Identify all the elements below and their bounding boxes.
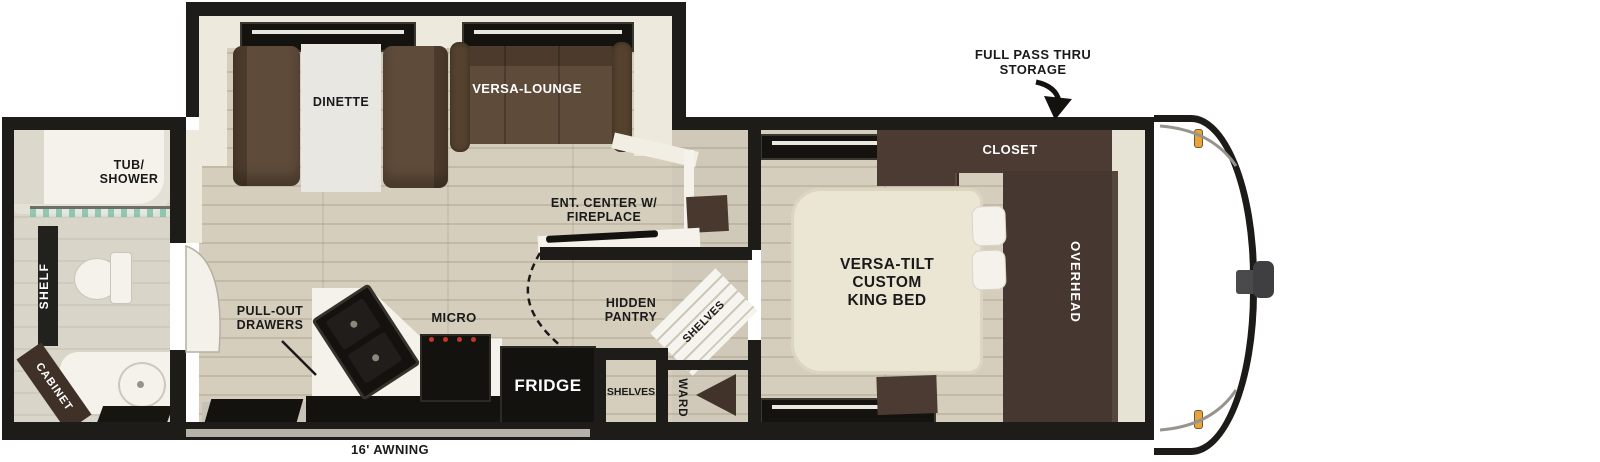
king-bed-label-line3: KING BED	[792, 292, 982, 310]
wall-bedroom-divider-lower	[748, 340, 761, 422]
shelves-room-label: SHELVES	[604, 386, 658, 398]
bathroom-mat	[97, 406, 173, 423]
overhead-label: OVERHEAD	[1062, 222, 1082, 342]
wall-shelvesroom-top	[594, 348, 668, 360]
hidden-pantry-label-line2: PANTRY	[595, 310, 667, 324]
awning-label: 16' AWNING	[320, 443, 460, 458]
entry-step	[205, 399, 304, 422]
wall-main-left-upper	[186, 2, 199, 117]
wall-main-right	[672, 2, 686, 130]
closet-label: CLOSET	[960, 143, 1060, 158]
toilet-tank	[110, 252, 132, 304]
hidden-pantry-label-line1: HIDDEN	[595, 296, 667, 310]
awning-bar	[186, 429, 590, 437]
sink-drain	[137, 381, 144, 388]
bed-foot-cabinet	[876, 375, 937, 415]
wall-bath-left	[2, 117, 14, 422]
ent-center-label: ENT. CENTER W/ FIREPLACE	[545, 196, 663, 225]
king-bed-label: VERSA-TILT CUSTOM KING BED	[792, 256, 982, 310]
burner-knob	[457, 337, 462, 342]
stove	[420, 334, 491, 402]
overhead-cabinet	[1003, 171, 1118, 422]
burner-knob	[443, 337, 448, 342]
king-bed-label-line1: VERSA-TILT	[792, 256, 982, 274]
fridge: FRIDGE	[500, 346, 596, 426]
ent-center-label-line2: FIREPLACE	[545, 210, 663, 224]
marker-light-top	[1194, 129, 1203, 148]
hidden-pantry-label: HIDDEN PANTRY	[595, 296, 667, 325]
burner-knob	[471, 337, 476, 342]
main-right-wall-face	[634, 14, 672, 156]
corner-shelves-label: SHELVES	[680, 298, 727, 345]
tub-shower-label: TUB/ SHOWER	[84, 158, 174, 187]
ent-center-label-line1: ENT. CENTER W/	[545, 196, 663, 210]
dinette-table	[301, 44, 381, 192]
fridge-label: FRIDGE	[514, 376, 581, 396]
dinette-bench-right	[383, 46, 448, 188]
shower-glass-sparkle	[30, 209, 172, 217]
ward-label: WARD	[668, 348, 688, 448]
wall-bedroom-top	[672, 117, 1150, 130]
pull-out-label-line2: DRAWERS	[228, 318, 312, 332]
storage-arrow-shaft	[1036, 82, 1059, 101]
king-bed-label-line2: CUSTOM	[792, 274, 982, 292]
hitch-coupler	[1253, 261, 1274, 298]
pull-out-drawers-label: PULL-OUT DRAWERS	[228, 304, 312, 333]
main-left-wall-face-lower	[185, 130, 202, 243]
bed-head-cabinet	[877, 130, 959, 186]
pillow-top	[971, 205, 1006, 246]
wall-main-top	[186, 2, 684, 16]
tub-shower-label-line2: SHOWER	[84, 172, 174, 186]
versa-lounge-label: VERSA-LOUNGE	[462, 82, 592, 97]
pass-thru-label-line2: STORAGE	[958, 63, 1108, 78]
tub-shower-label-line1: TUB/	[84, 158, 174, 172]
pass-thru-label-line1: FULL PASS THRU	[958, 48, 1108, 63]
micro-label: MICRO	[424, 311, 484, 326]
travel-trailer-floorplan: CABINET FRIDGE SHELVES	[0, 0, 1600, 462]
burner-knob	[429, 337, 434, 342]
dinette-label: DINETTE	[306, 95, 376, 109]
wall-bath-right-lower	[170, 350, 186, 422]
pass-thru-storage-label: FULL PASS THRU STORAGE	[958, 48, 1108, 78]
shelf-label: SHELF	[38, 226, 58, 346]
main-left-wall-face	[199, 16, 227, 166]
marker-light-bottom	[1194, 410, 1203, 429]
wall-bedroom-divider-upper	[748, 130, 761, 250]
pull-out-label-line1: PULL-OUT	[228, 304, 312, 318]
wall-pantry-horizontal	[540, 247, 752, 260]
wall-bath-top	[2, 117, 186, 130]
dinette-bench-left	[233, 46, 300, 186]
